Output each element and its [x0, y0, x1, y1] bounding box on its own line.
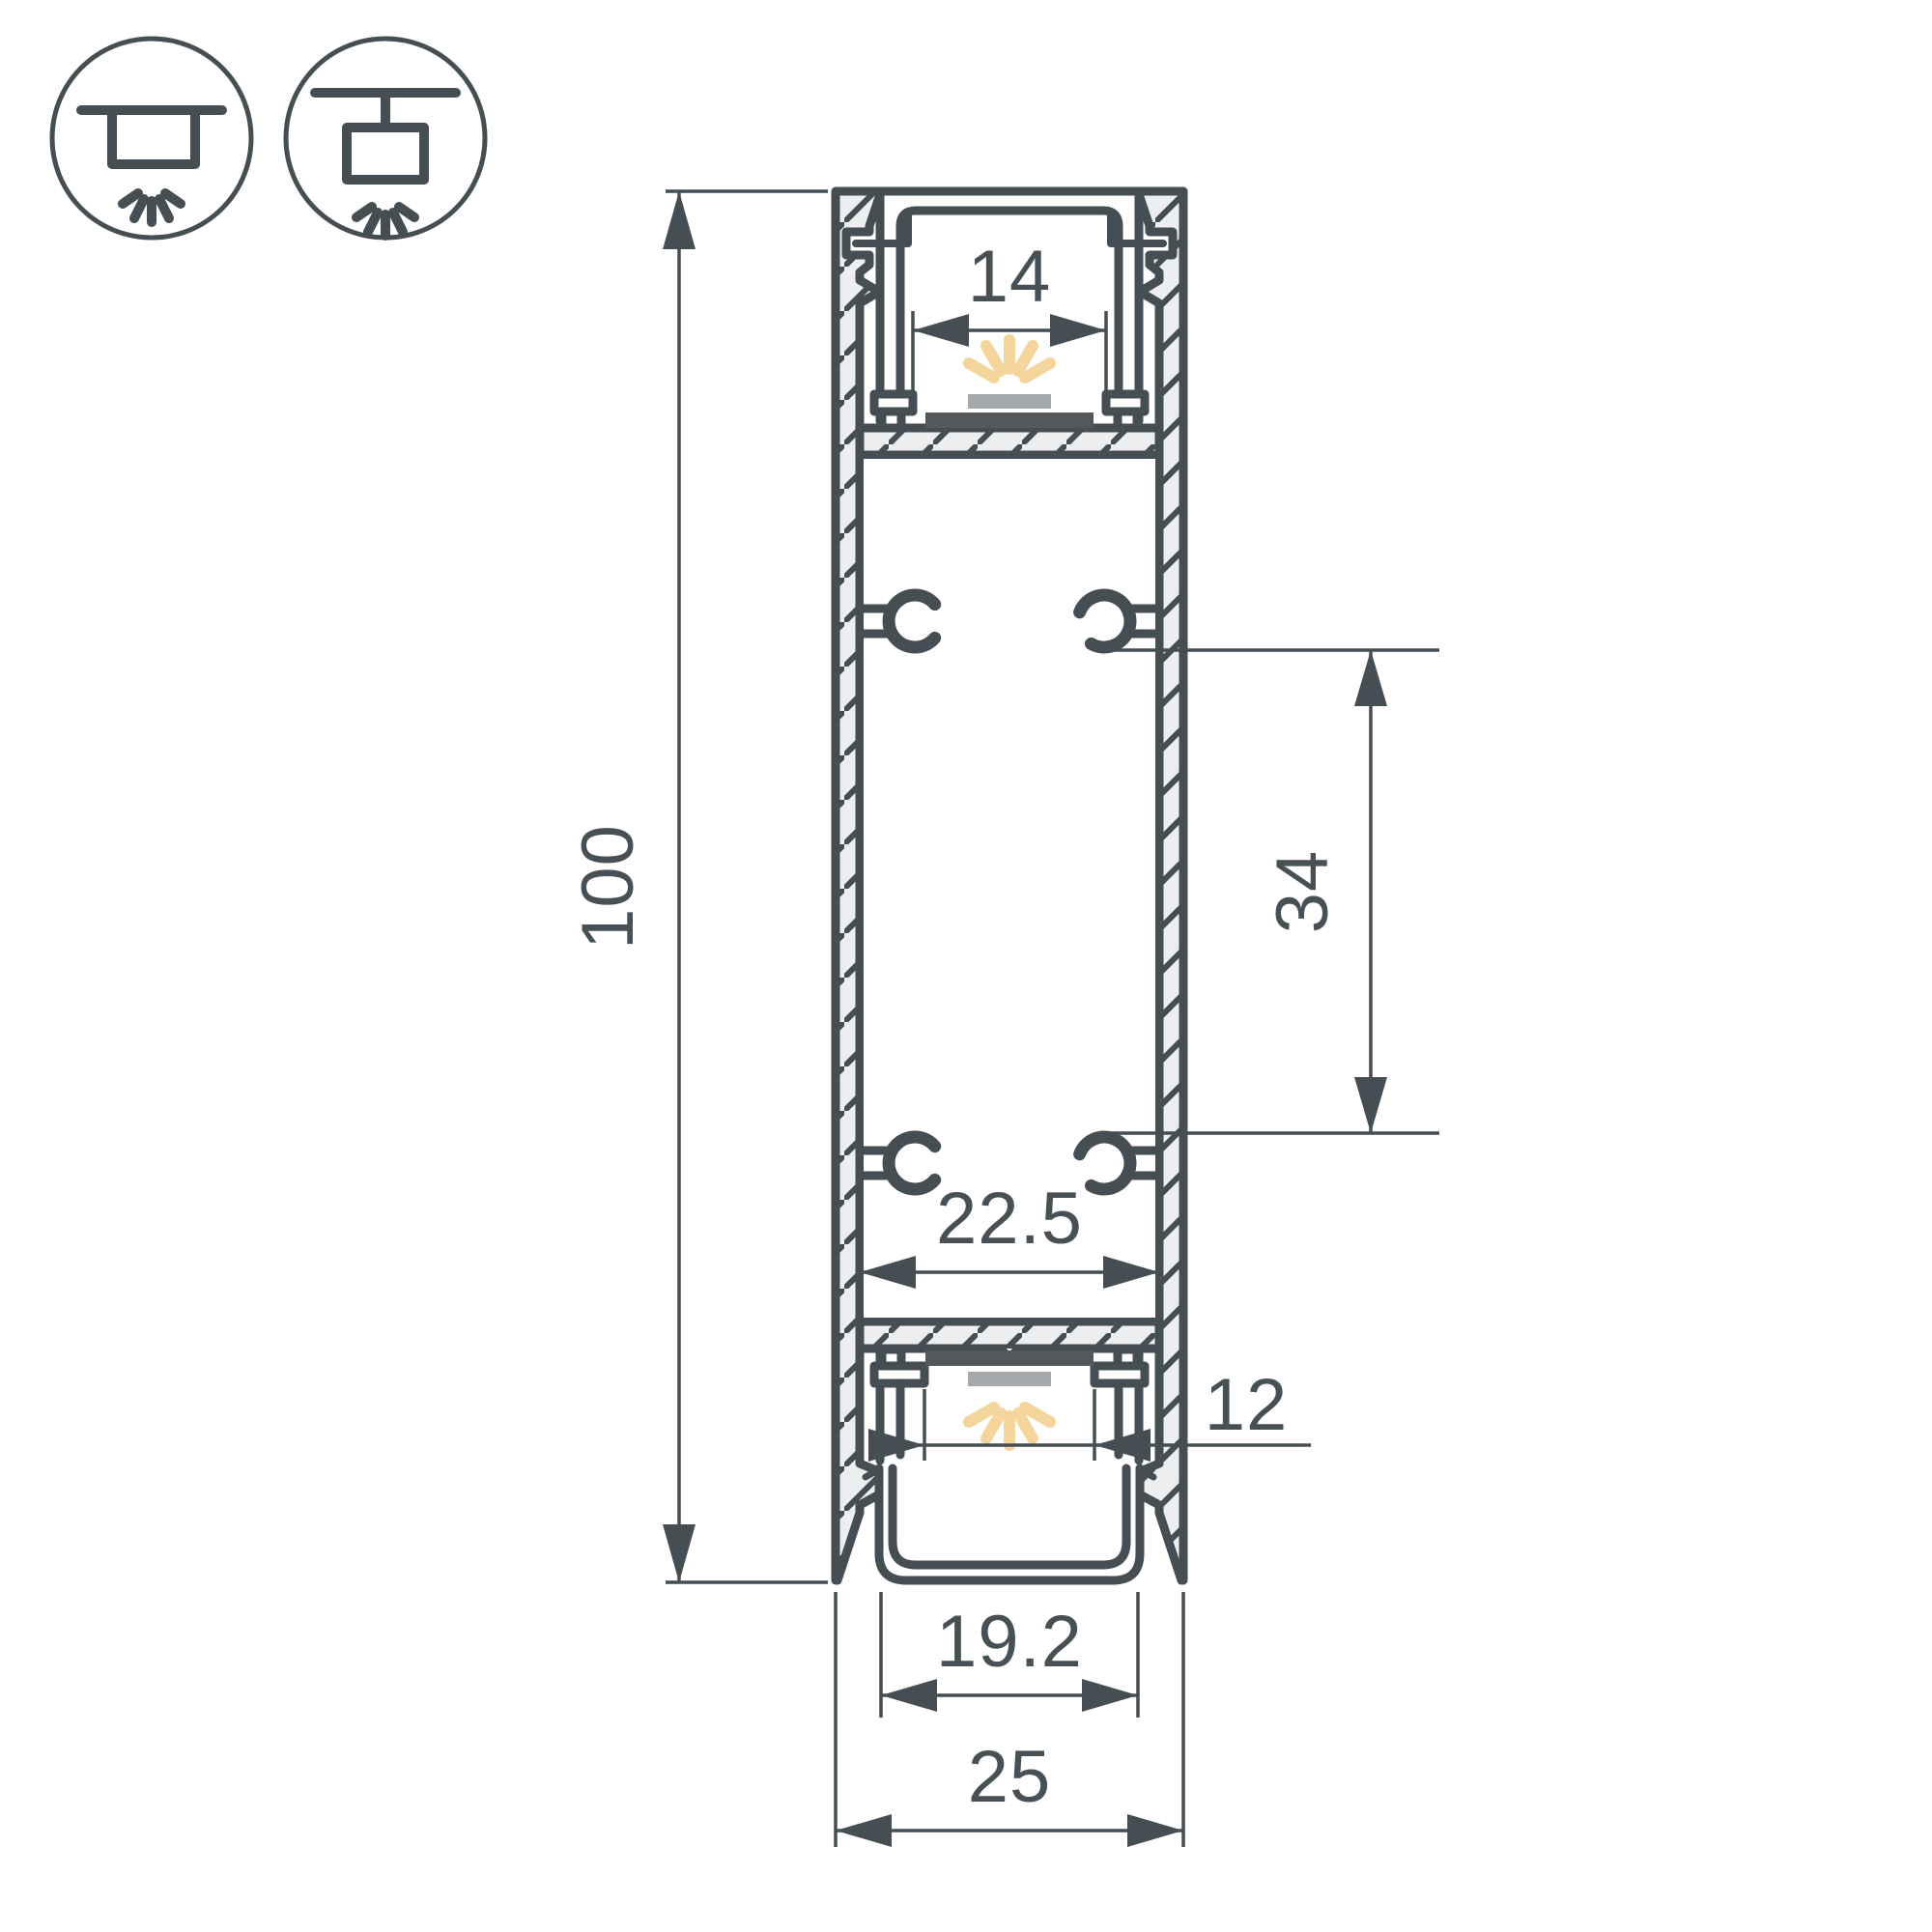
dim-label-mount-spacing: 34: [1262, 850, 1344, 934]
bottom-diffuser-cover: [866, 1468, 1153, 1580]
dim-top-opening: 14: [913, 236, 1106, 406]
upper-divider-hatched: [860, 428, 1159, 455]
led-pcb-strip: [925, 1350, 1094, 1366]
technical-drawing-page: 100 14 34 22.5: [0, 0, 1932, 1932]
recessed-ceiling-mount-icon: [52, 39, 251, 238]
t-slot-stem-left: [882, 412, 901, 428]
t-slot-stem-left: [882, 1350, 901, 1366]
light-glow-down: [969, 1407, 1050, 1445]
dim-overall-height: 100: [567, 191, 828, 1582]
profile-cross-section: [836, 191, 1183, 1580]
dim-label-bottom-opening: 12: [1205, 1364, 1289, 1446]
light-glow-up: [969, 340, 1050, 378]
dim-label-overall-width: 25: [968, 1736, 1052, 1818]
drawing-canvas: 100 14 34 22.5: [0, 0, 1932, 1932]
dim-label-diffuser-width: 19.2: [936, 1601, 1083, 1683]
luminaire-box: [347, 128, 424, 180]
led-emitter: [968, 1372, 1051, 1386]
t-slot-stem-right: [1118, 1350, 1137, 1366]
led-emitter: [968, 394, 1051, 409]
surface-ceiling-mount-icon: [286, 39, 485, 238]
dim-label-top-opening: 14: [968, 236, 1052, 318]
t-slot-stem-right: [1118, 412, 1137, 428]
light-rays-icon: [356, 207, 414, 236]
dim-label-height: 100: [567, 824, 649, 950]
dim-bottom-opening: 12: [868, 1364, 1311, 1462]
dim-diffuser-width: 19.2: [881, 1592, 1138, 1718]
light-rays-icon: [123, 193, 181, 222]
luminaire-box: [112, 110, 195, 164]
icon-circle: [286, 39, 485, 238]
led-pcb-strip: [925, 412, 1094, 428]
dim-label-inner-width: 22.5: [936, 1178, 1083, 1260]
lower-divider-hatched: [860, 1321, 1159, 1349]
